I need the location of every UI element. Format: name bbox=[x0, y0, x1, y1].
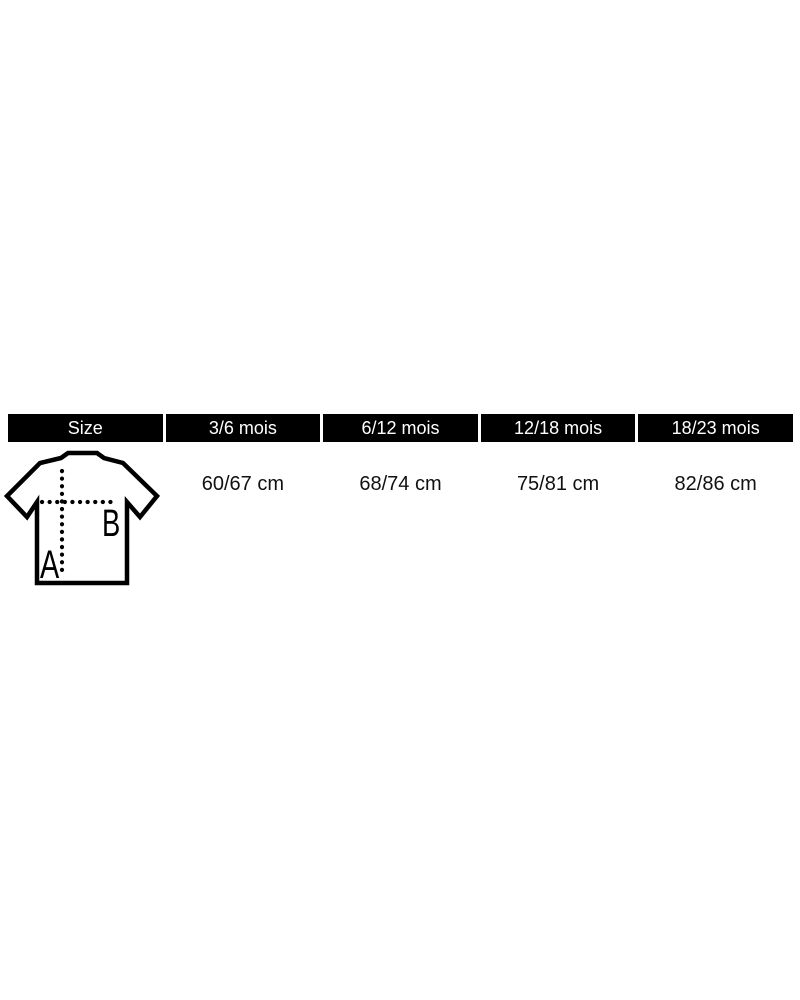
header-cell-age-1: 3/6 mois bbox=[166, 414, 321, 442]
measurement-cell-2: 68/74 cm bbox=[323, 442, 478, 496]
measurement-cell-1: 60/67 cm bbox=[166, 442, 321, 496]
tshirt-diagram-icon: A B bbox=[1, 450, 163, 586]
measurement-cell-3: 75/81 cm bbox=[481, 442, 636, 496]
diagram-label-a: A bbox=[40, 542, 60, 586]
size-chart-header-row: Size 3/6 mois 6/12 mois 12/18 mois 18/23… bbox=[8, 414, 793, 442]
header-cell-age-2: 6/12 mois bbox=[323, 414, 478, 442]
header-cell-age-3: 12/18 mois bbox=[481, 414, 636, 442]
header-cell-age-4: 18/23 mois bbox=[638, 414, 793, 442]
measurement-cell-4: 82/86 cm bbox=[638, 442, 793, 496]
tshirt-outline bbox=[7, 453, 157, 583]
size-chart-table: Size 3/6 mois 6/12 mois 12/18 mois 18/23… bbox=[8, 414, 793, 496]
header-cell-size: Size bbox=[8, 414, 163, 442]
diagram-label-b: B bbox=[102, 503, 120, 545]
